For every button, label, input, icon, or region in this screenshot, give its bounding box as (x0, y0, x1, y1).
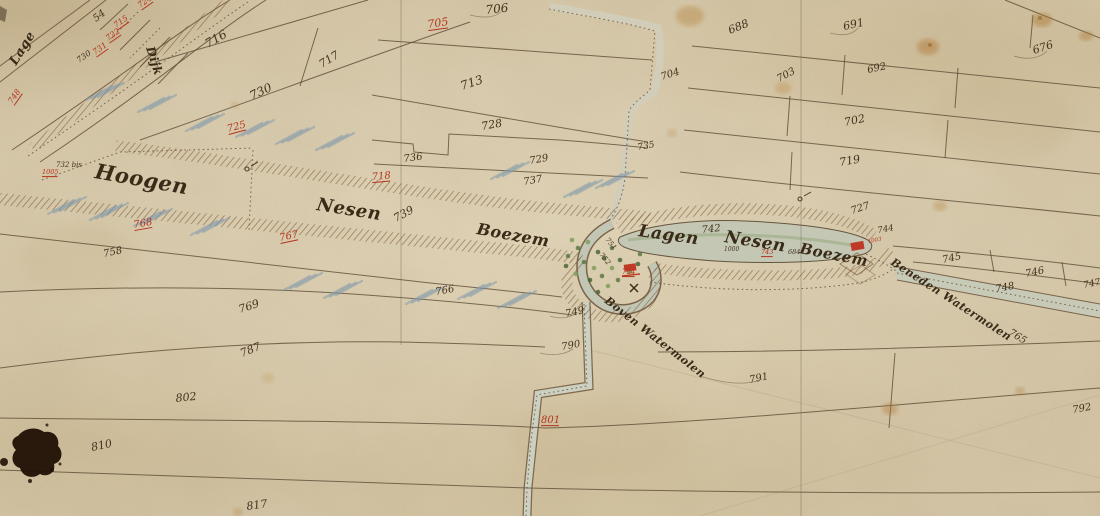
parcel-number-784: 784 (622, 268, 635, 277)
parcel-number-742: 742 (701, 223, 721, 236)
parcel-number-705: 705 (427, 15, 450, 31)
historical-map-drawing: 5470670571671773072571372873672971873770… (0, 0, 1100, 516)
svg-text:706: 706 (485, 1, 510, 17)
parcel-number-1005: 1005 (42, 168, 59, 177)
map-canvas: 5470670571671773072571372873672971873770… (0, 0, 1100, 516)
parcel-number-802: 802 (175, 390, 197, 405)
parcel-number-706: 706 (485, 1, 510, 17)
svg-text:1005: 1005 (42, 168, 59, 176)
svg-text:802: 802 (175, 390, 197, 405)
svg-text:784: 784 (622, 268, 635, 276)
parcel-number-801: 801 (541, 415, 560, 426)
svg-text:801: 801 (541, 415, 560, 426)
parcel-number-732-bis: 732 bis (56, 161, 82, 169)
svg-text:732 bis: 732 bis (56, 161, 82, 169)
parcel-number-718: 718 (371, 170, 391, 183)
svg-text:742: 742 (701, 223, 721, 236)
